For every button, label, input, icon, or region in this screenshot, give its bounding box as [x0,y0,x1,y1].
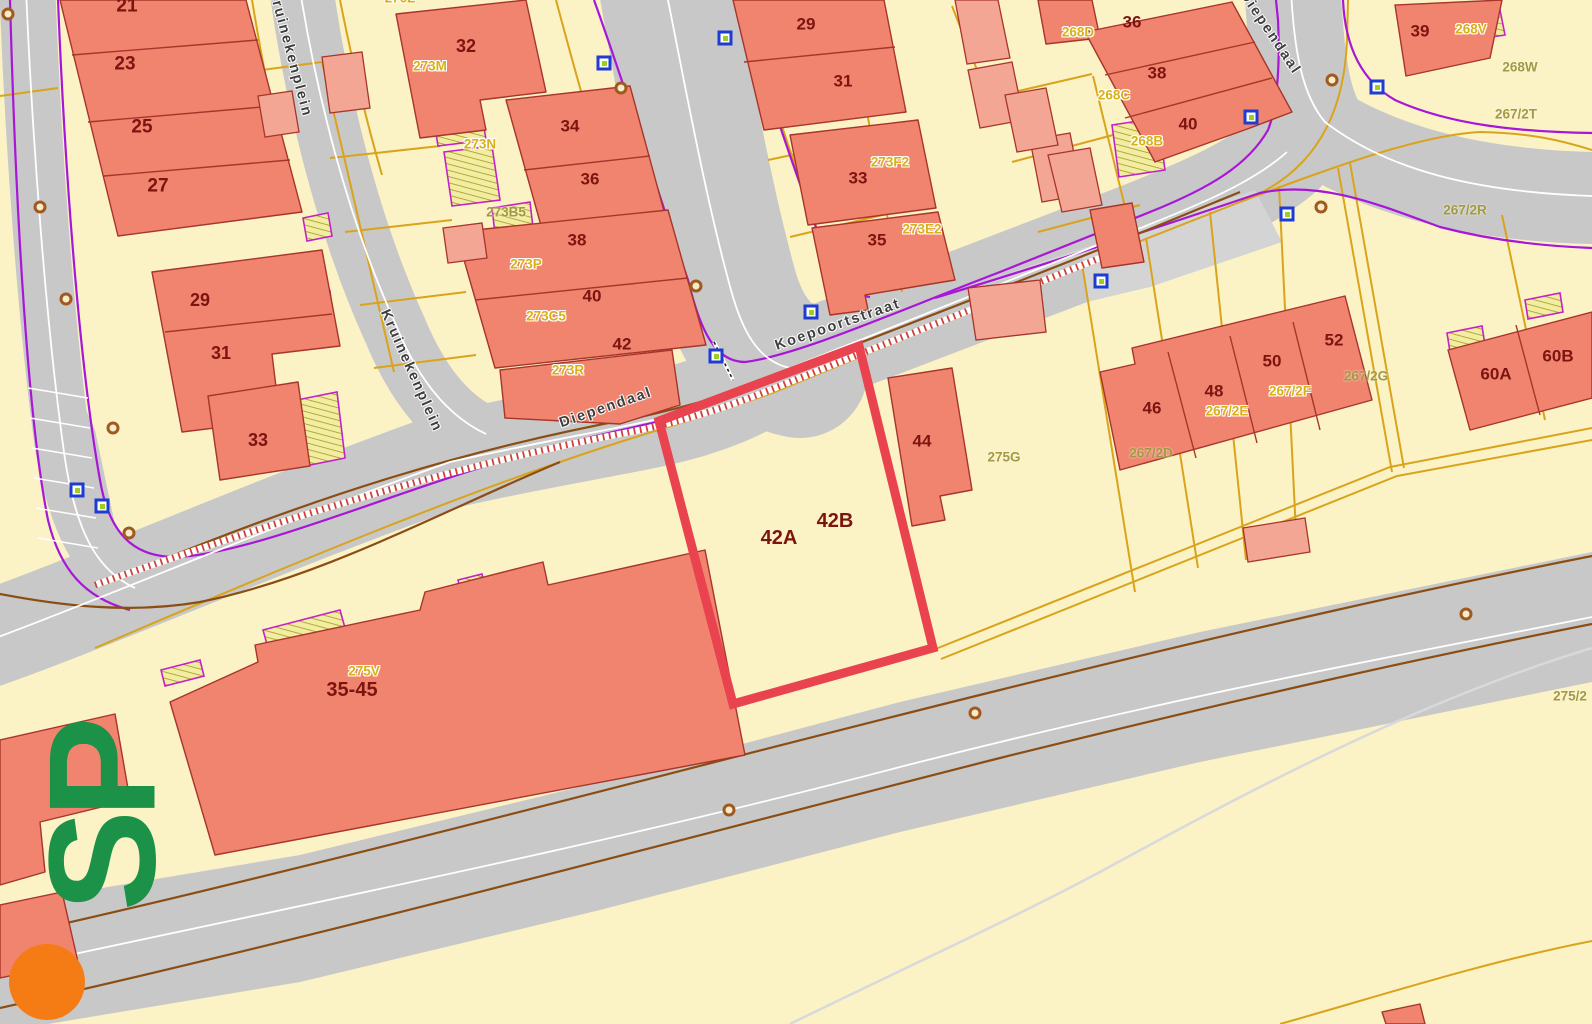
building-number: 38 [1148,65,1167,82]
building-number: 46 [1143,400,1162,417]
parcel-label: 273C5 [526,309,566,323]
sp-logo: SP [16,725,191,912]
parcel-label: 268B [1131,134,1163,148]
parcel-label: 267/2F [1269,384,1311,398]
building-number: 23 [114,55,135,74]
building-number: 42 [613,336,632,353]
building-number: 27 [147,177,168,196]
parcel-label: 267/2E [1206,404,1249,418]
parcel-label: 273M [413,59,447,73]
street-name-label: Kruinekenplein [266,0,314,119]
building-number: 48 [1205,383,1224,400]
parcel-label: 268C [1098,88,1130,102]
label-layer: 2123252729313332343638404229313335363840… [0,0,1592,1024]
building-number: 36 [1123,14,1142,31]
parcel-label: 273B5 [486,205,526,219]
building-number: 60B [1542,348,1573,365]
parcel-label: 273E2 [902,222,941,236]
parcel-label: 267/2R [1443,203,1487,217]
building-number: 42A [761,528,798,548]
parcel-label: 273P [510,257,542,271]
building-number: 50 [1263,353,1282,370]
building-number: 39 [1411,23,1430,40]
building-number: 36 [581,171,600,188]
parcel-label: 275V [348,664,380,678]
cadastral-map: 2123252729313332343638404229313335363840… [0,0,1592,1024]
building-number: 44 [913,433,932,450]
building-number: 21 [116,0,137,16]
parcel-label: 268W [1502,60,1537,74]
building-number: 40 [583,288,602,305]
building-number: 34 [561,118,580,135]
parcel-label: 267/2D [1129,446,1173,460]
parcel-label: 273N [464,137,496,151]
parcel-label: 267/2G [1344,369,1388,383]
building-number: 35-45 [326,680,377,700]
parcel-label: 275/2 [1553,689,1587,703]
parcel-label: 276Z [385,0,416,5]
street-name-label: Diependaal [1237,0,1303,77]
street-name-label: Diependaal [558,385,655,430]
building-number: 29 [190,291,210,309]
building-number: 52 [1325,332,1344,349]
building-number: 60A [1480,366,1511,383]
building-number: 40 [1179,116,1198,133]
street-name-label: Kruinekenplein [377,307,444,434]
building-number: 35 [868,232,887,249]
building-number: 33 [248,431,268,449]
parcel-label: 267/2T [1495,107,1537,121]
building-number: 31 [211,344,231,362]
parcel-label: 273R [552,363,584,377]
parcel-label: 275G [987,450,1020,464]
building-number: 42B [817,511,854,531]
building-number: 38 [568,232,587,249]
parcel-label: 268V [1455,22,1487,36]
building-number: 25 [131,118,152,137]
parcel-label: 268D [1062,25,1094,39]
parcel-label: 273F2 [871,155,909,169]
building-number: 31 [834,73,853,90]
street-name-label: Koepoortstraat [773,297,902,354]
building-number: 33 [849,170,868,187]
building-number: 32 [456,37,476,55]
building-number: 29 [797,16,816,33]
sp-logo-dot-icon [9,944,85,1020]
